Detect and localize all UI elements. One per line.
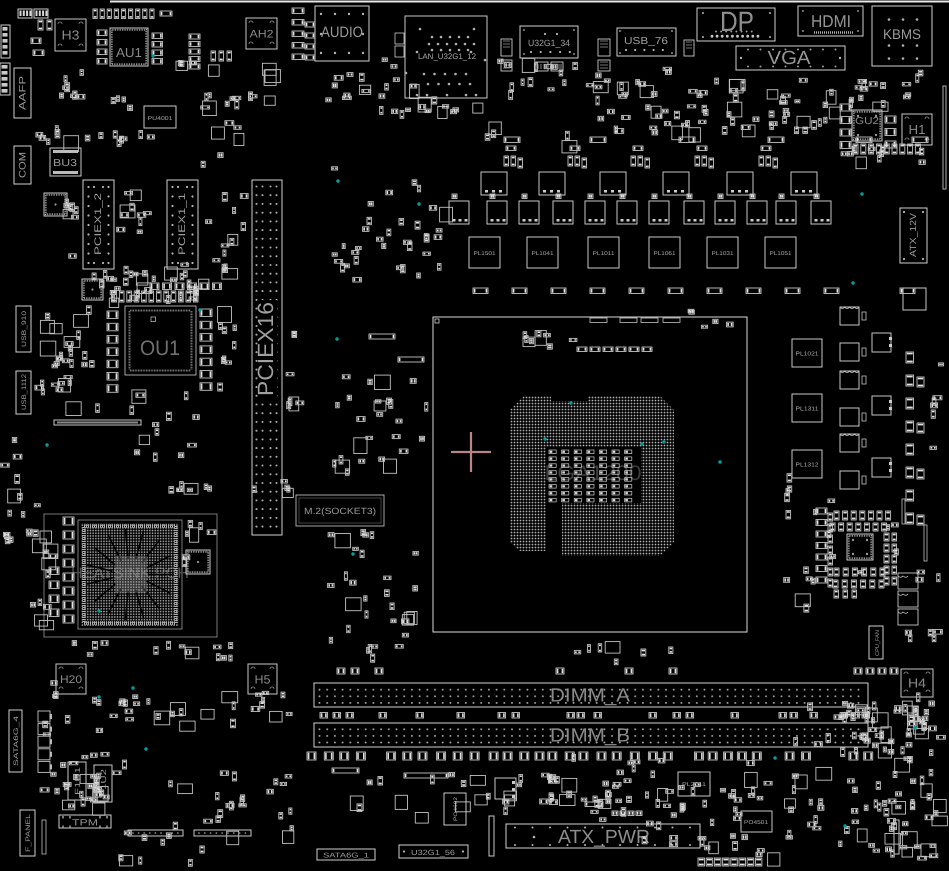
svg-text:AAFP: AAFP: [18, 76, 29, 110]
svg-text:PL1021: PL1021: [796, 351, 819, 358]
svg-text:COM: COM: [18, 152, 29, 178]
svg-text:H1: H1: [909, 122, 926, 137]
svg-text:PL1031: PL1031: [712, 251, 734, 257]
svg-text:F1U1: F1U1: [73, 767, 82, 795]
svg-text:AH2: AH2: [250, 28, 274, 40]
svg-text:PL1051: PL1051: [770, 251, 792, 257]
svg-text:ATX_PWR: ATX_PWR: [558, 827, 650, 848]
svg-text:PCIEX16: PCIEX16: [253, 302, 278, 396]
svg-text:LAN_U32G1_12: LAN_U32G1_12: [418, 52, 477, 61]
svg-text:OU1: OU1: [140, 337, 180, 360]
svg-text:SATA6G_4: SATA6G_4: [13, 715, 20, 766]
svg-text:USB_910: USB_910: [21, 311, 28, 347]
svg-text:BU3: BU3: [53, 158, 78, 169]
svg-text:H3: H3: [62, 28, 80, 43]
svg-text:DIMM_B: DIMM_B: [550, 726, 630, 747]
svg-text:TPM: TPM: [72, 818, 98, 828]
svg-text:DIMM_A: DIMM_A: [550, 686, 630, 707]
svg-text:PO4501: PO4501: [744, 820, 768, 826]
svg-text:USB_1112: USB_1112: [21, 374, 28, 410]
svg-text:HDMI: HDMI: [811, 12, 851, 31]
svg-text:VGA: VGA: [768, 48, 811, 69]
svg-text:M.2(SOCKET3): M.2(SOCKET3): [304, 506, 376, 516]
svg-text:SATA6G_1: SATA6G_1: [323, 853, 369, 860]
svg-text:U32G1_34: U32G1_34: [528, 38, 570, 48]
svg-text:USB_76: USB_76: [624, 36, 669, 47]
svg-text:PO4602: PO4602: [453, 797, 459, 821]
svg-text:PCIEX1_1: PCIEX1_1: [177, 193, 188, 255]
svg-text:H20: H20: [60, 674, 82, 686]
svg-text:PL1041: PL1041: [532, 251, 554, 257]
svg-text:PL1011: PL1011: [593, 251, 615, 257]
svg-text:PL1311: PL1311: [796, 406, 819, 413]
svg-text:DP: DP: [720, 6, 754, 37]
svg-text:AUDIO: AUDIO: [321, 24, 363, 41]
svg-text:U32G1_56: U32G1_56: [411, 848, 455, 857]
svg-text:GU2: GU2: [855, 116, 880, 127]
svg-text:PL1501: PL1501: [474, 251, 496, 257]
svg-text:ATX_12V: ATX_12V: [908, 213, 918, 257]
svg-text:KBMS: KBMS: [883, 26, 921, 42]
svg-text:H5: H5: [255, 672, 271, 686]
svg-text:CPU_FAN: CPU_FAN: [875, 630, 881, 656]
svg-text:PL1312: PL1312: [796, 462, 819, 469]
svg-text:H4: H4: [908, 676, 926, 691]
svg-text:PL1061: PL1061: [654, 251, 676, 257]
svg-text:AU1: AU1: [116, 45, 142, 60]
svg-text:PU4001: PU4001: [148, 116, 173, 122]
svg-text:PCIEX1_2: PCIEX1_2: [93, 193, 104, 255]
svg-text:F_PANEL: F_PANEL: [25, 813, 32, 852]
